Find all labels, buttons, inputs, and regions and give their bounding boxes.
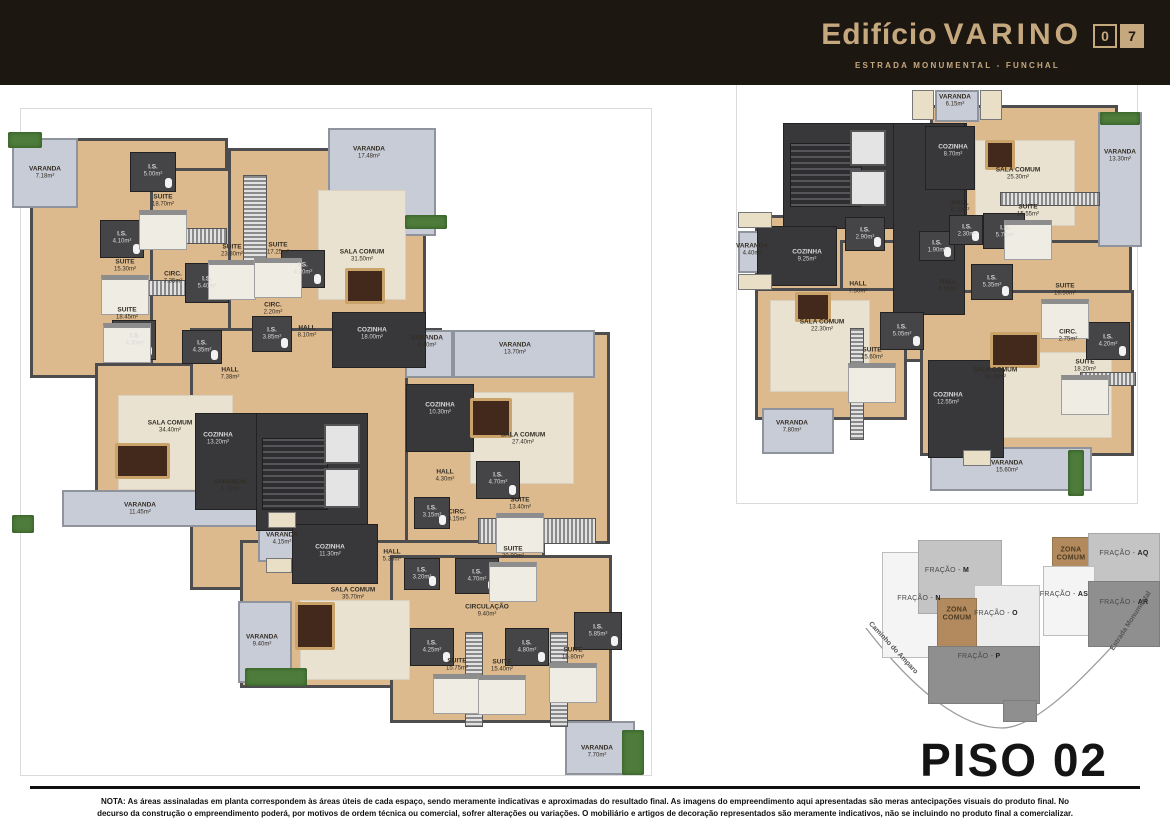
- keyplan-label: ZONACOMUM: [936, 607, 978, 624]
- room-label: I.S.4.80m²: [518, 640, 537, 655]
- room-label: I.S.1.90m²: [928, 240, 947, 255]
- keyplan-label: FRAÇÃO - N: [897, 595, 940, 603]
- technical-box: [266, 558, 292, 573]
- room-area: 10.30m²: [425, 409, 455, 416]
- balcony: [1098, 112, 1142, 247]
- room-name: VARANDA: [246, 634, 278, 642]
- room-label: SUITE15.40m²: [491, 659, 513, 674]
- keyplan-label: FRAÇÃO - M: [925, 567, 969, 575]
- room-area: 4.80m²: [518, 647, 537, 654]
- room-area: 4.30m²: [126, 340, 145, 347]
- room-name: COZINHA: [203, 432, 233, 440]
- room-area: 13.70m²: [499, 349, 531, 356]
- footer-divider: [30, 786, 1140, 789]
- room-name: SUITE: [1054, 283, 1076, 291]
- room-label: HALL5.35m²: [383, 549, 402, 564]
- room-area: 9.25m²: [792, 256, 822, 263]
- room-name: VARANDA: [776, 420, 808, 428]
- room-name: SALA COMUM: [973, 367, 1018, 375]
- room-area: 16.80m²: [562, 654, 584, 661]
- room-area: 3.85m²: [263, 334, 282, 341]
- room-label: VARANDA15.60m²: [991, 460, 1023, 475]
- room-area: 6.15m²: [951, 207, 970, 214]
- room-area: 8.10m²: [298, 332, 317, 339]
- room-label: HALL6.15m²: [951, 200, 970, 215]
- keyplan-label: FRAÇÃO - O: [974, 610, 1018, 618]
- room-name: COZINHA: [938, 144, 968, 152]
- room-label: COZINHA10.30m²: [425, 402, 455, 417]
- dining-table: [985, 140, 1015, 170]
- room-area: 13.30m²: [1104, 156, 1136, 163]
- keyplan-label: FRAÇÃO - P: [957, 653, 1000, 661]
- room-label: I.S.2.30m²: [958, 224, 977, 239]
- room-area: 13.40m²: [509, 504, 531, 511]
- room-area: 5.35m²: [983, 282, 1002, 289]
- room-name: I.S.: [893, 324, 912, 332]
- hedge: [245, 668, 307, 686]
- technical-box: [738, 212, 772, 228]
- room-label: SUITE23.80m²: [221, 244, 243, 259]
- room-area: 22.30m²: [800, 326, 845, 333]
- room-label: SUITE15.55m²: [1017, 204, 1039, 219]
- bed: [139, 210, 187, 250]
- room-label: VARANDA4.15m²: [266, 532, 298, 547]
- hedge: [405, 215, 447, 229]
- room-area: 18.00m²: [357, 334, 387, 341]
- floor-title: PISO 02: [920, 733, 1108, 787]
- room-area: 8.70m²: [938, 151, 968, 158]
- room-name: I.S.: [518, 640, 537, 648]
- room-name: SUITE: [562, 647, 584, 655]
- room-name: VARANDA: [266, 532, 298, 540]
- room-label: I.S.4.20m²: [294, 262, 313, 277]
- stairs: [262, 438, 328, 510]
- room-area: 4.70m²: [468, 576, 487, 583]
- room-area: 12.55m²: [933, 399, 963, 406]
- room-label: SUITE15.30m²: [114, 259, 136, 274]
- bed: [1061, 375, 1109, 415]
- room-label: SUITE18.70m²: [152, 194, 174, 209]
- room-name: SUITE: [502, 546, 524, 554]
- bed: [478, 675, 526, 715]
- room-label: HALL8.10m²: [298, 325, 317, 340]
- room-name: I.S.: [423, 505, 442, 513]
- room-name: COZINHA: [315, 544, 345, 552]
- room-name: VARANDA: [1104, 149, 1136, 157]
- room-label: SUITE18.20m²: [1074, 359, 1096, 374]
- room-name: VARANDA: [991, 460, 1023, 468]
- room-area: 13.20m²: [203, 439, 233, 446]
- keyplan-label: ZONACOMUM: [1050, 547, 1092, 564]
- room-name: I.S.: [263, 327, 282, 335]
- room-area: 5.35m²: [383, 556, 402, 563]
- service-core: [195, 413, 257, 510]
- room-label: COZINHA11.30m²: [315, 544, 345, 559]
- bed: [549, 663, 597, 703]
- keyplan-block: [1003, 700, 1037, 722]
- room-name: COZINHA: [425, 402, 455, 410]
- technical-box: [268, 512, 296, 528]
- room-label: COZINHA9.25m²: [792, 249, 822, 264]
- room-name: CIRC.: [448, 509, 467, 517]
- room-label: I.S.4.70m²: [468, 569, 487, 584]
- room-label: CIRC.2.20m²: [264, 302, 283, 317]
- dining-table: [295, 602, 335, 650]
- room-label: I.S.5.70m²: [996, 225, 1015, 240]
- room-label: SUITE16.50m²: [1054, 283, 1076, 298]
- room-label: HALL7.50m²: [849, 281, 868, 296]
- room-label: VARANDA17.48m²: [353, 146, 385, 161]
- room-area: 6.15m²: [214, 486, 246, 493]
- room-area: 18.20m²: [1074, 366, 1096, 373]
- room-label: I.S.5.05m²: [893, 324, 912, 339]
- room-label: VARANDA7.80m²: [776, 420, 808, 435]
- building-title-name: VARINO: [944, 18, 1082, 51]
- badge-digit: 0: [1093, 24, 1117, 48]
- room-label: SUITE17.25m²: [267, 242, 289, 257]
- room-area: 7.70m²: [581, 752, 613, 759]
- room-area: 2.90m²: [856, 234, 875, 241]
- room-label: COZINHA13.20m²: [203, 432, 233, 447]
- bed: [489, 562, 537, 602]
- room-label: VARANDA6.15m²: [939, 94, 971, 109]
- room-label: CIRC.3.15m²: [448, 509, 467, 524]
- room-area: 4.20m²: [1099, 341, 1118, 348]
- room-area: 5.40m²: [198, 283, 217, 290]
- room-area: 3.15m²: [448, 516, 467, 523]
- room-label: I.S.4.30m²: [126, 333, 145, 348]
- room-area: 2.30m²: [958, 231, 977, 238]
- room-label: SUITE15.75m²: [446, 658, 468, 673]
- room-name: SALA COMUM: [148, 420, 193, 428]
- dining-table: [990, 332, 1040, 368]
- room-name: VARANDA: [499, 342, 531, 350]
- room-name: VARANDA: [353, 146, 385, 154]
- room-name: SUITE: [509, 497, 531, 505]
- room-name: SALA COMUM: [340, 249, 385, 257]
- room-area: 25.30m²: [996, 174, 1041, 181]
- keyplan-label: FRAÇÃO - AS: [1040, 591, 1088, 599]
- room-name: COZINHA: [933, 392, 963, 400]
- room-name: COZINHA: [792, 249, 822, 257]
- room-area: 5.00m²: [144, 171, 163, 178]
- room-name: I.S.: [423, 640, 442, 648]
- room-name: SALA COMUM: [996, 167, 1041, 175]
- room-label: SALA COMUM25.30m²: [996, 167, 1041, 182]
- technical-box: [738, 274, 772, 290]
- room-label: I.S.3.20m²: [413, 567, 432, 582]
- room-label: SUITE13.40m²: [509, 497, 531, 512]
- room-area: 7.50m²: [849, 288, 868, 295]
- room-label: SALA COMUM27.40m²: [501, 432, 546, 447]
- room-label: CIRCULAÇÃO9.40m²: [465, 604, 509, 619]
- room-label: COZINHA12.55m²: [933, 392, 963, 407]
- elevator: [324, 424, 360, 464]
- room-area: 18.70m²: [152, 201, 174, 208]
- room-label: I.S.2.90m²: [856, 227, 875, 242]
- room-name: VARANDA: [29, 166, 61, 174]
- room-name: HALL: [221, 367, 240, 375]
- room-area: 15.60m²: [991, 467, 1023, 474]
- room-area: 15.60m²: [861, 354, 883, 361]
- room-label: VARANDA6.15m²: [214, 479, 246, 494]
- room-area: 4.40m²: [736, 250, 768, 257]
- room-area: 4.25m²: [423, 647, 442, 654]
- room-name: HALL: [849, 281, 868, 289]
- room-label: CIRC.2.75m²: [1059, 329, 1078, 344]
- room-label: SUITE18.45m²: [116, 307, 138, 322]
- room-area: 2.75m²: [1059, 336, 1078, 343]
- room-label: VARANDA11.45m²: [124, 502, 156, 517]
- room-label: I.S.3.15m²: [423, 505, 442, 520]
- room-area: 7.18m²: [29, 173, 61, 180]
- room-area: 6.65m²: [939, 286, 958, 293]
- building-title: EdifícioVARINO: [821, 18, 1082, 52]
- room-area: 4.30m²: [436, 476, 455, 483]
- room-name: SUITE: [861, 347, 883, 355]
- room-label: I.S.4.70m²: [489, 472, 508, 487]
- room-label: SUITE20.90m²: [502, 546, 524, 561]
- room-name: I.S.: [113, 231, 132, 239]
- room-name: I.S.: [294, 262, 313, 270]
- room-label: SALA COMUM31.50m²: [340, 249, 385, 264]
- room-label: VARANDA7.70m²: [581, 745, 613, 760]
- elevator: [324, 468, 360, 508]
- hedge: [12, 515, 34, 533]
- room-name: I.S.: [193, 340, 212, 348]
- disclaimer-note: NOTA: As áreas assinaladas em planta cor…: [85, 796, 1085, 821]
- room-area: 9.40m²: [246, 641, 278, 648]
- room-name: I.S.: [489, 472, 508, 480]
- room-area: 3.20m²: [413, 574, 432, 581]
- hedge: [8, 132, 42, 148]
- room-name: I.S.: [468, 569, 487, 577]
- room-area: 17.25m²: [267, 249, 289, 256]
- room-area: 4.15m²: [266, 539, 298, 546]
- room-area: 9.40m²: [465, 611, 509, 618]
- room-name: I.S.: [198, 276, 217, 284]
- room-name: I.S.: [144, 164, 163, 172]
- room-name: I.S.: [856, 227, 875, 235]
- room-area: 27.40m²: [501, 439, 546, 446]
- room-label: I.S.4.35m²: [193, 340, 212, 355]
- room-label: CIRC.7.35m²: [164, 271, 183, 286]
- room-label: SALA COMUM35.70m²: [331, 587, 376, 602]
- room-area: 34.40m²: [148, 427, 193, 434]
- hedge: [622, 730, 644, 775]
- room-name: SUITE: [491, 659, 513, 667]
- room-area: 1.90m²: [928, 247, 947, 254]
- room-name: VARANDA: [581, 745, 613, 753]
- room-name: SALA COMUM: [331, 587, 376, 595]
- room-area: 15.40m²: [491, 666, 513, 673]
- room-area: 23.80m²: [221, 251, 243, 258]
- header: EdifícioVARINO 07 ESTRADA MONUMENTAL - F…: [0, 0, 1170, 85]
- room-label: I.S.4.25m²: [423, 640, 442, 655]
- room-name: HALL: [951, 200, 970, 208]
- room-name: I.S.: [589, 624, 608, 632]
- room-area: 4.10m²: [113, 238, 132, 245]
- room-name: SUITE: [114, 259, 136, 267]
- room-label: HALL4.30m²: [436, 469, 455, 484]
- room-area: 34.35m²: [973, 374, 1018, 381]
- room-label: I.S.4.20m²: [1099, 334, 1118, 349]
- bed: [433, 674, 481, 714]
- room-label: I.S.5.85m²: [589, 624, 608, 639]
- room-name: CIRCULAÇÃO: [465, 604, 509, 612]
- room-area: 7.80m²: [776, 427, 808, 434]
- room-area: 16.50m²: [1054, 290, 1076, 297]
- room-name: SUITE: [1074, 359, 1096, 367]
- room-name: HALL: [383, 549, 402, 557]
- room-label: VARANDA9.40m²: [246, 634, 278, 649]
- dining-table: [115, 443, 170, 479]
- room-name: I.S.: [928, 240, 947, 248]
- dining-table: [795, 292, 831, 322]
- room-label: VARANDA7.18m²: [29, 166, 61, 181]
- room-name: HALL: [436, 469, 455, 477]
- technical-box: [963, 450, 991, 466]
- header-subtitle: ESTRADA MONUMENTAL - FUNCHAL: [855, 61, 1060, 70]
- room-label: I.S.3.85m²: [263, 327, 282, 342]
- room-name: SUITE: [116, 307, 138, 315]
- elevator: [850, 170, 886, 206]
- room-area: 35.70m²: [331, 594, 376, 601]
- elevator: [850, 130, 886, 166]
- building-title-prefix: Edifício: [821, 18, 937, 51]
- room-name: COZINHA: [357, 327, 387, 335]
- room-name: SUITE: [221, 244, 243, 252]
- room-area: 7.35m²: [164, 278, 183, 285]
- room-label: HALL6.65m²: [939, 279, 958, 294]
- room-name: I.S.: [958, 224, 977, 232]
- technical-box: [912, 90, 934, 120]
- room-area: 2.20m²: [264, 309, 283, 316]
- room-area: 5.70m²: [996, 232, 1015, 239]
- keyplan-label: FRAÇÃO - AQ: [1099, 550, 1148, 558]
- dining-table: [345, 268, 385, 304]
- room-area: 15.75m²: [446, 665, 468, 672]
- building-number-badge: 07: [1093, 24, 1144, 48]
- room-name: HALL: [298, 325, 317, 333]
- room-label: I.S.5.00m²: [144, 164, 163, 179]
- room-name: SUITE: [1017, 204, 1039, 212]
- room-area: 3.15m²: [423, 512, 442, 519]
- room-label: SALA COMUM22.30m²: [800, 319, 845, 334]
- room-label: SUITE15.60m²: [861, 347, 883, 362]
- room-name: I.S.: [126, 333, 145, 341]
- room-name: CIRC.: [264, 302, 283, 310]
- room-label: I.S.5.40m²: [198, 276, 217, 291]
- room-area: 18.45m²: [116, 314, 138, 321]
- room-label: COZINHA8.70m²: [938, 144, 968, 159]
- room-label: HALL7.38m²: [221, 367, 240, 382]
- hedge: [1100, 112, 1140, 125]
- room-label: SALA COMUM34.35m²: [973, 367, 1018, 382]
- room-label: VARANDA4.40m²: [411, 335, 443, 350]
- technical-box: [980, 90, 1002, 120]
- page: EdifícioVARINO 07 ESTRADA MONUMENTAL - F…: [0, 0, 1170, 828]
- room-label: SUITE16.80m²: [562, 647, 584, 662]
- room-area: 5.05m²: [893, 331, 912, 338]
- room-label: VARANDA13.30m²: [1104, 149, 1136, 164]
- room-name: SUITE: [152, 194, 174, 202]
- room-name: I.S.: [983, 275, 1002, 283]
- room-name: VARANDA: [736, 243, 768, 251]
- room-label: I.S.4.10m²: [113, 231, 132, 246]
- room-name: VARANDA: [124, 502, 156, 510]
- room-name: VARANDA: [939, 94, 971, 102]
- room-area: 5.85m²: [589, 631, 608, 638]
- room-area: 15.55m²: [1017, 211, 1039, 218]
- room-label: I.S.5.35m²: [983, 275, 1002, 290]
- room-name: SUITE: [267, 242, 289, 250]
- room-label: COZINHA18.00m²: [357, 327, 387, 342]
- room-area: 4.35m²: [193, 347, 212, 354]
- room-name: CIRC.: [164, 271, 183, 279]
- room-area: 4.20m²: [294, 269, 313, 276]
- room-name: I.S.: [996, 225, 1015, 233]
- room-name: SALA COMUM: [800, 319, 845, 327]
- room-name: VARANDA: [411, 335, 443, 343]
- badge-digit: 7: [1120, 24, 1144, 48]
- room-name: SUITE: [446, 658, 468, 666]
- room-label: VARANDA13.70m²: [499, 342, 531, 357]
- room-area: 6.15m²: [939, 101, 971, 108]
- wardrobe: [1000, 192, 1100, 206]
- room-name: I.S.: [413, 567, 432, 575]
- room-name: I.S.: [1099, 334, 1118, 342]
- room-name: VARANDA: [214, 479, 246, 487]
- hedge: [1068, 450, 1084, 496]
- room-area: 15.30m²: [114, 266, 136, 273]
- room-area: 31.50m²: [340, 256, 385, 263]
- room-area: 11.45m²: [124, 509, 156, 516]
- room-area: 17.48m²: [353, 153, 385, 160]
- room-area: 11.30m²: [315, 551, 345, 558]
- room-area: 4.70m²: [489, 479, 508, 486]
- room-area: 20.90m²: [502, 553, 524, 560]
- room-area: 4.40m²: [411, 342, 443, 349]
- room-area: 7.38m²: [221, 374, 240, 381]
- service-core: [406, 384, 474, 452]
- room-label: SALA COMUM34.40m²: [148, 420, 193, 435]
- room-name: CIRC.: [1059, 329, 1078, 337]
- room-label: VARANDA4.40m²: [736, 243, 768, 258]
- bed: [848, 363, 896, 403]
- room-name: SALA COMUM: [501, 432, 546, 440]
- room-name: HALL: [939, 279, 958, 287]
